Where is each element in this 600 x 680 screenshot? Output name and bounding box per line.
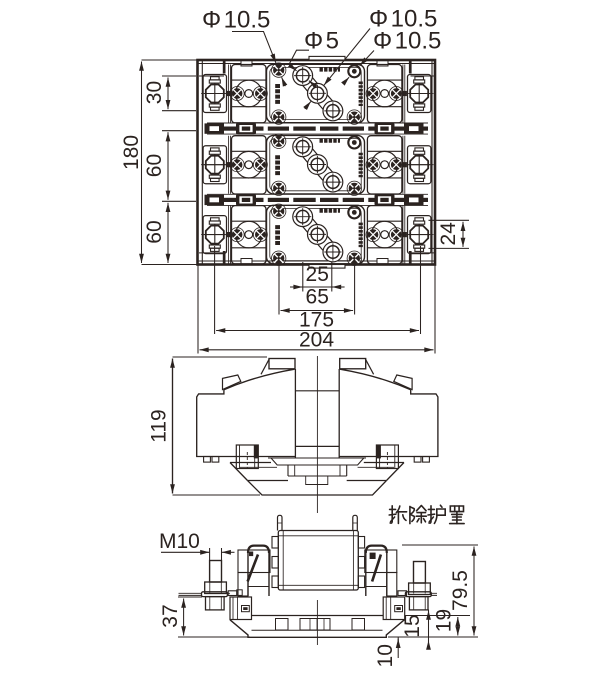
svg-text:119: 119 [148, 409, 171, 442]
svg-text:M10: M10 [159, 530, 200, 553]
svg-text:60: 60 [143, 154, 166, 177]
svg-text:19: 19 [433, 609, 456, 632]
svg-text:24: 24 [437, 222, 460, 246]
svg-text:37: 37 [159, 604, 182, 627]
svg-text:15: 15 [401, 614, 424, 637]
svg-text:25: 25 [306, 263, 329, 286]
svg-text:180: 180 [120, 135, 143, 170]
svg-text:Φ5: Φ5 [304, 28, 339, 55]
svg-text:Φ10.5: Φ10.5 [373, 28, 441, 55]
svg-text:30: 30 [143, 81, 166, 104]
svg-text:65: 65 [306, 286, 329, 309]
svg-text:Φ10.5: Φ10.5 [202, 7, 270, 34]
svg-text:60: 60 [143, 220, 166, 243]
svg-text:10: 10 [374, 644, 397, 667]
svg-text:204: 204 [299, 329, 334, 352]
svg-text:79.5: 79.5 [449, 570, 472, 611]
